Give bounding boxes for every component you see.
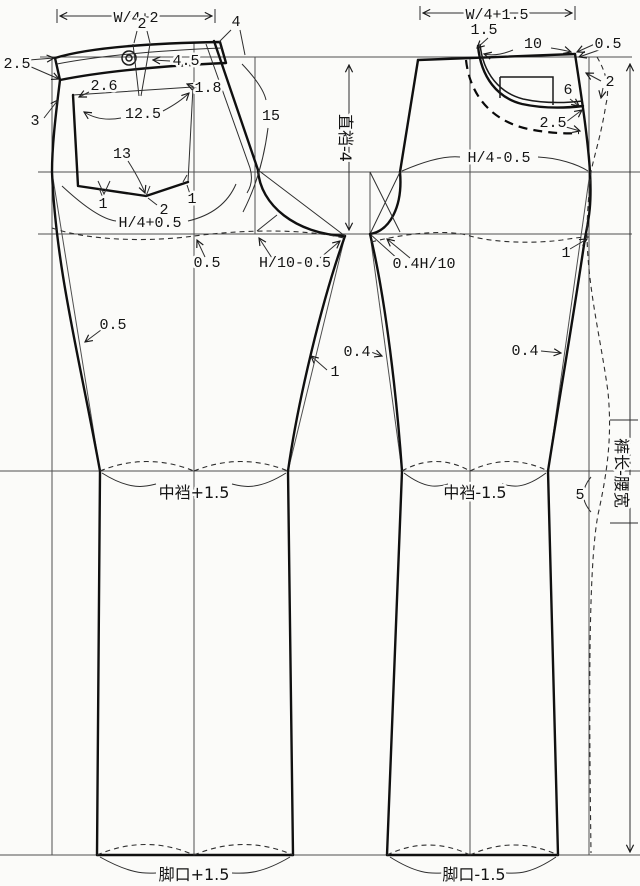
trouser-pattern-draft: W/4+2 2 4 2.5 4.5 1.8 2.6 3 12.5 13 15 1…	[0, 0, 640, 886]
label-front-hem-width: 脚口+1.5	[159, 865, 230, 884]
back-hem-arcs	[387, 845, 558, 855]
label-front-band-extension: 4.5	[172, 53, 199, 70]
label-back-pocket-height: 6	[563, 82, 572, 99]
back-knee-arcs	[402, 462, 548, 472]
label-back-yoke-rise: 1.5	[470, 22, 497, 39]
label-front-side-notch: 3	[30, 113, 39, 130]
pattern-diagram-canvas: W/4+2 2 4 2.5 4.5 1.8 2.6 3 12.5 13 15 1…	[0, 0, 640, 886]
label-front-side-offset: 0.5	[99, 317, 126, 334]
label-front-hip-width: H/4+0.5	[118, 215, 181, 232]
label-pocket-dart-right: 1	[187, 191, 196, 208]
label-back-waist-raise: 0.5	[594, 36, 621, 53]
front-inseam	[288, 236, 345, 855]
front-piece	[52, 41, 345, 855]
label-front-crotch-extension: H/10-0.5	[259, 255, 331, 272]
label-rise-depth: 直裆-4	[336, 114, 355, 162]
label-front-band-width: 2.5	[3, 56, 30, 73]
button-icon-inner	[126, 55, 132, 61]
back-inseam	[370, 234, 402, 855]
label-back-yoke-width: 10	[524, 36, 542, 53]
label-back-inseam-offset: 0.4	[343, 344, 370, 361]
label-front-rise-length: 15	[262, 108, 280, 125]
back-rise	[400, 60, 418, 172]
label-back-crotch-extension: 0.4H/10	[392, 256, 455, 273]
front-waistband	[55, 42, 226, 80]
back-side-seam	[548, 54, 591, 855]
label-front-inseam-offset: 1	[330, 364, 339, 381]
label-front-pocket-slant: 12.5	[125, 106, 161, 123]
label-back-knee-diff: 5	[575, 487, 584, 504]
label-back-hem-width: 脚口-1.5	[442, 865, 505, 884]
label-pocket-dart-left: 1	[98, 196, 107, 213]
label-front-pocket-opening: 2.6	[90, 78, 117, 95]
label-back-side-offset: 0.4	[511, 343, 538, 360]
label-back-hip-width: H/4-0.5	[467, 150, 530, 167]
label-front-pocket-depth: 13	[113, 146, 131, 163]
label-front-fly-width: 1.8	[194, 80, 221, 97]
front-side-seam	[52, 80, 100, 855]
label-back-hip-side-offset: 1	[561, 245, 570, 262]
label-back-pocket-offset: 2.5	[539, 115, 566, 132]
front-pocket-top	[73, 87, 193, 182]
front-hem-arcs	[97, 845, 293, 856]
label-front-dart-width: 2	[137, 16, 146, 33]
label-trouser-length: 裤长-腰宽	[612, 438, 631, 508]
label-front-fly-corner: 4	[231, 14, 240, 31]
front-fly-line	[214, 41, 258, 170]
label-back-side-curve-offset: 2	[605, 74, 614, 91]
back-pocket-welt	[500, 77, 553, 105]
front-waist-dart	[133, 44, 150, 96]
label-back-knee-width: 中裆-1.5	[443, 483, 506, 502]
back-crotch-guides	[370, 172, 400, 260]
front-pocket-darts	[98, 175, 187, 196]
label-front-knee-width: 中裆+1.5	[159, 483, 230, 502]
label-front-waist-width: W/4+2	[113, 10, 158, 27]
label-front-crease-offset: 0.5	[193, 255, 220, 272]
